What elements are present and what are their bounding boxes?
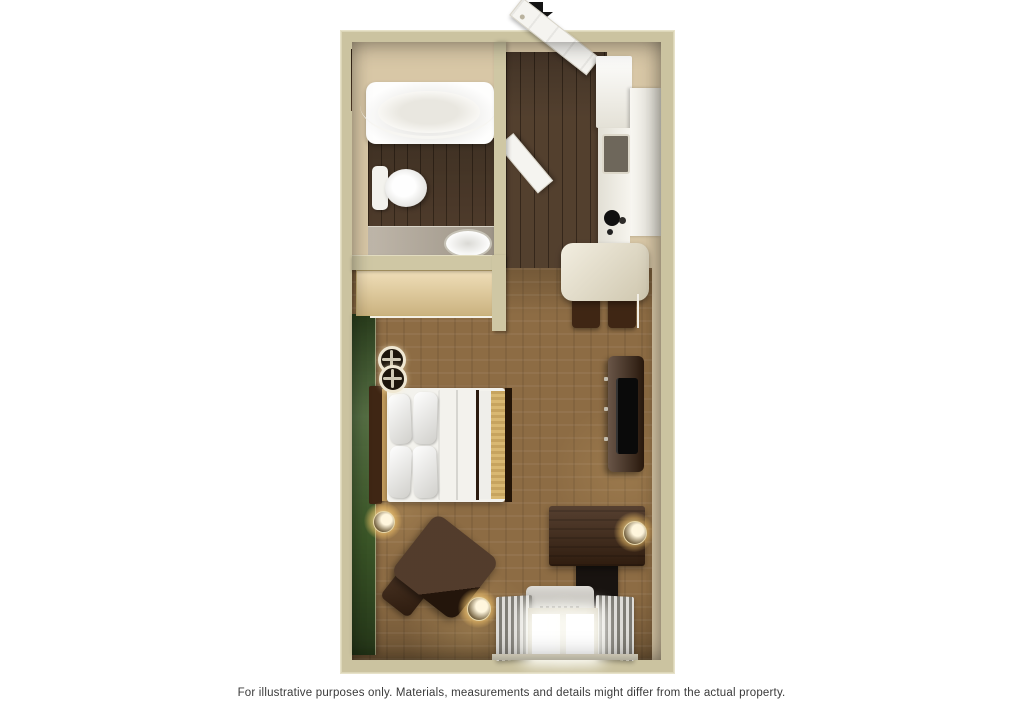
toilet-bowl — [385, 169, 427, 207]
bed-duvet — [438, 390, 476, 500]
bathroom-hall-wall — [494, 42, 506, 258]
drawer-knob — [604, 407, 608, 411]
wall-sconce-icon — [467, 597, 491, 621]
drawer-knob — [604, 437, 608, 441]
stove-burner — [619, 217, 626, 224]
disclaimer-caption: For illustrative purposes only. Material… — [0, 687, 1023, 699]
ceiling-light-icon — [379, 365, 407, 393]
bed-runner — [491, 391, 505, 499]
counter-table — [561, 243, 649, 301]
table-leg — [637, 294, 639, 328]
refrigerator — [596, 56, 632, 128]
drawer-knob — [604, 377, 608, 381]
unit-interior — [352, 42, 661, 660]
window — [528, 608, 598, 660]
bed-sheet-fold — [479, 391, 491, 499]
wall-sconce-icon — [373, 511, 395, 533]
curtain — [596, 595, 634, 661]
pillow — [412, 392, 438, 445]
wall-sconce-icon — [623, 521, 647, 545]
closet-shelf — [356, 270, 496, 316]
bathroom-closet-wall — [352, 255, 506, 270]
bed-headboard — [369, 386, 382, 504]
stove-burner — [604, 210, 620, 226]
floor-plan-page: For illustrative purposes only. Material… — [0, 0, 1023, 716]
kitchen-cabinet-counter — [630, 88, 661, 236]
window-pane — [532, 614, 560, 654]
floor-plan — [340, 30, 675, 674]
pillow — [388, 445, 413, 498]
window-pane — [566, 614, 594, 654]
pillow — [412, 446, 438, 499]
closet-side-wall — [492, 255, 506, 331]
pillow — [388, 393, 413, 444]
flat-tv — [616, 378, 638, 454]
door-knob — [519, 13, 526, 20]
light-blade — [382, 358, 401, 361]
closet-hangers — [388, 311, 476, 317]
light-blade — [383, 377, 402, 380]
window-sill — [492, 654, 638, 660]
sink — [444, 229, 492, 258]
microwave — [602, 134, 630, 174]
stove-burner — [607, 229, 613, 235]
curtain — [496, 595, 532, 661]
bed-footboard — [505, 388, 512, 502]
